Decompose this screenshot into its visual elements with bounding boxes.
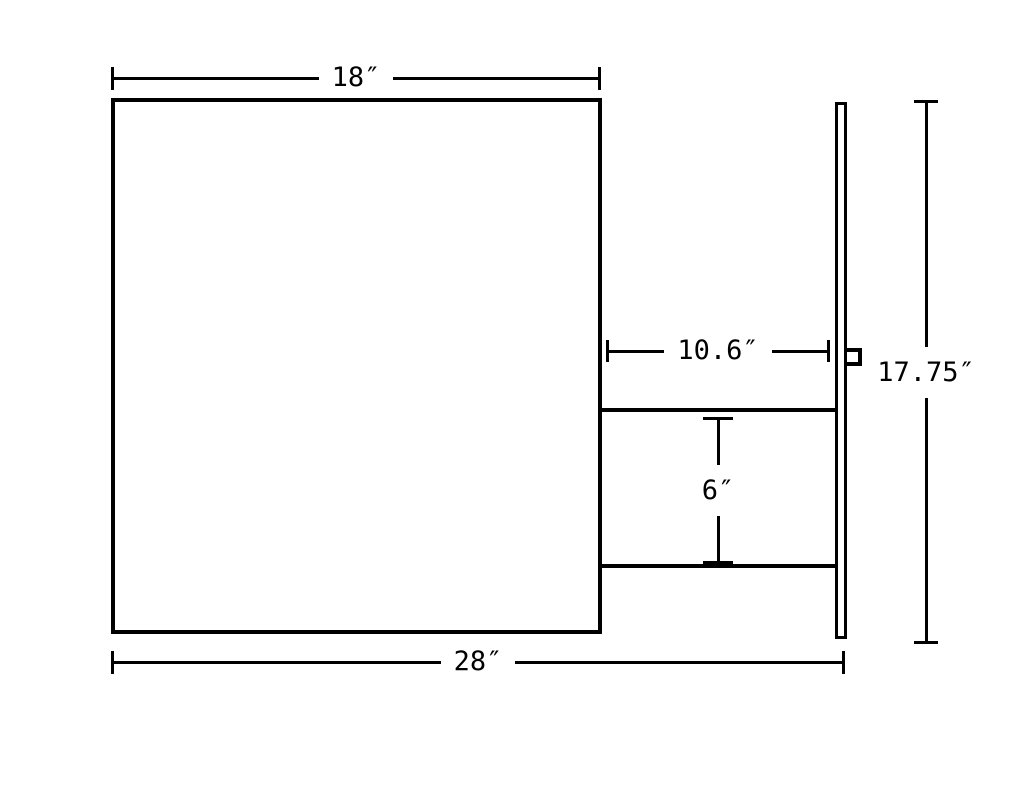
- dimension-line-segment: [393, 77, 598, 80]
- dimension-tick-bottom: [914, 641, 938, 644]
- cabinet-outline: [111, 98, 602, 634]
- dimension-line-segment: [114, 77, 319, 80]
- dimension-tick-right: [827, 340, 830, 362]
- back-panel-outline: [835, 102, 847, 639]
- dimension-label-top-width: 18″: [319, 64, 394, 91]
- dimension-line-segment: [717, 516, 720, 561]
- dimension-drawing-canvas: 18″ 10.6″ 6″ 17.75″ 28″: [0, 0, 1024, 808]
- shelf-bottom-edge-line: [602, 564, 836, 568]
- dimension-overall-width: 28″: [111, 651, 845, 674]
- dimension-recess-depth: 10.6″: [606, 340, 830, 362]
- dimension-top-width: 18″: [111, 67, 601, 90]
- shelf-top-edge-line: [602, 408, 836, 412]
- dimension-opening-height: 6″: [703, 417, 733, 564]
- dimension-line-segment: [772, 350, 827, 353]
- dimension-label-overall-width: 28″: [441, 648, 516, 675]
- dimension-overall-height: 17.75″: [914, 100, 938, 644]
- dimension-tick-bottom: [703, 561, 733, 564]
- dimension-line-segment: [925, 103, 928, 347]
- dimension-line-segment: [925, 398, 928, 642]
- dimension-line-segment: [717, 420, 720, 465]
- dimension-tick-right: [598, 67, 601, 90]
- dimension-label-overall-height: 17.75″: [877, 347, 975, 398]
- dimension-tick-right: [842, 651, 845, 674]
- dimension-line-segment: [609, 350, 664, 353]
- dimension-line-segment: [114, 661, 441, 664]
- dimension-line-segment: [515, 661, 842, 664]
- mount-bracket-tab: [845, 348, 862, 366]
- dimension-label-opening-height: 6″: [702, 465, 735, 516]
- dimension-label-recess-depth: 10.6″: [664, 337, 771, 364]
